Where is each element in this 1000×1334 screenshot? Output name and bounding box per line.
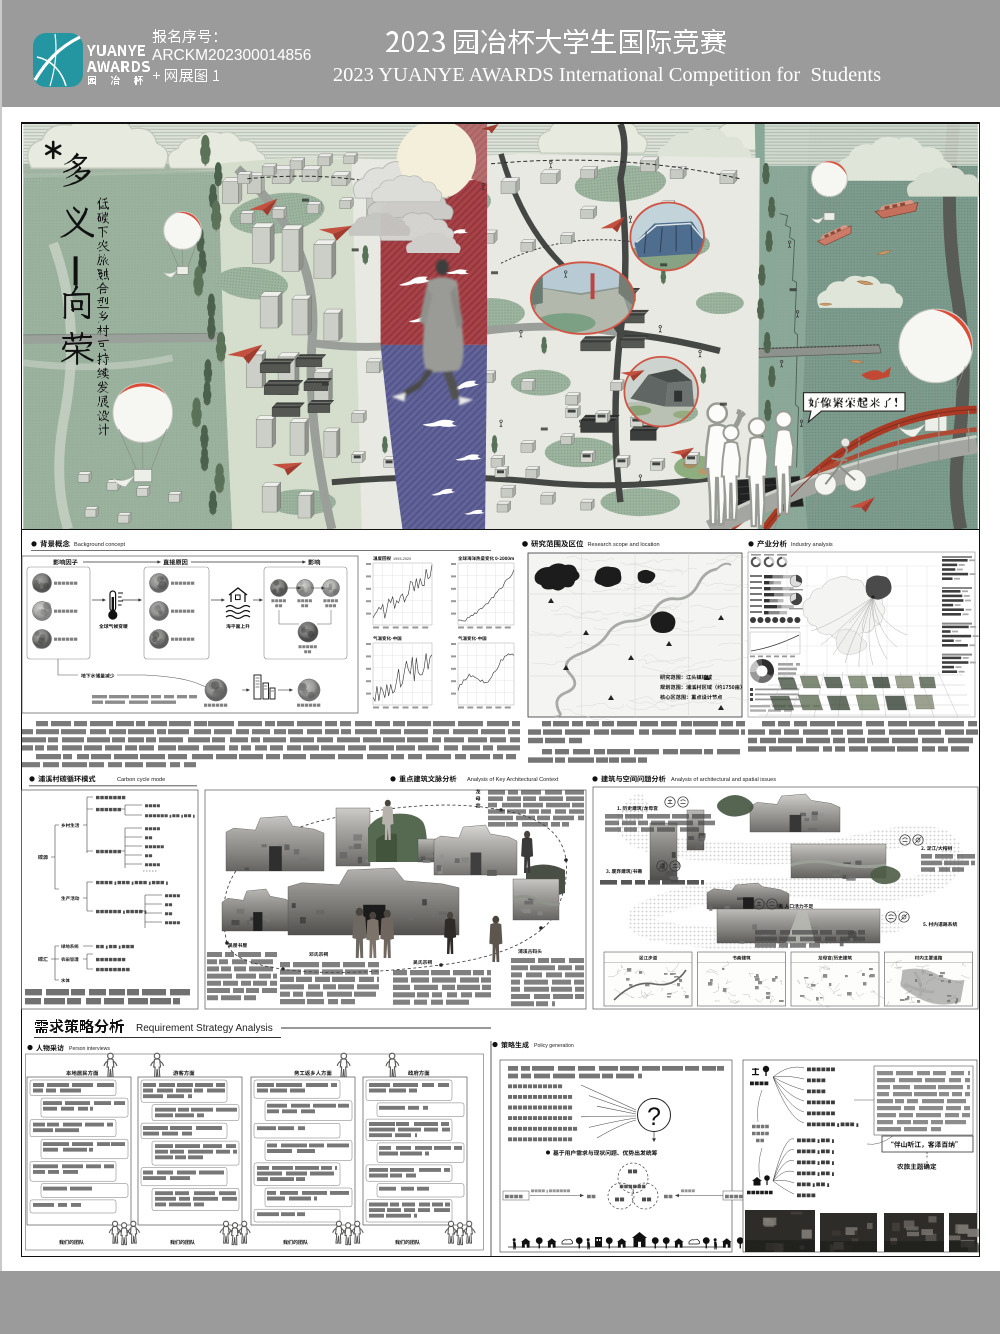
svg-text:Analysis of architectural and: Analysis of architectural and spatial is… [671,777,776,783]
svg-text:Requirement Strategy Analysis: Requirement Strategy Analysis [136,1023,273,1034]
svg-text:1993-2020: 1993-2020 [393,557,411,561]
svg-text:Industry analysis: Industry analysis [791,542,833,548]
svg-text:?: ? [647,1103,661,1131]
svg-text:Person interviews: Person interviews [69,1046,110,1052]
svg-text:Policy generation: Policy generation [534,1043,574,1049]
svg-text:Analysis of Key Architectural: Analysis of Key Architectural Context [467,777,559,783]
svg-text:Research scope and location: Research scope and location [588,542,660,548]
svg-text:Carbon cycle mode: Carbon cycle mode [117,777,165,783]
svg-text:Background concept: Background concept [74,542,125,548]
